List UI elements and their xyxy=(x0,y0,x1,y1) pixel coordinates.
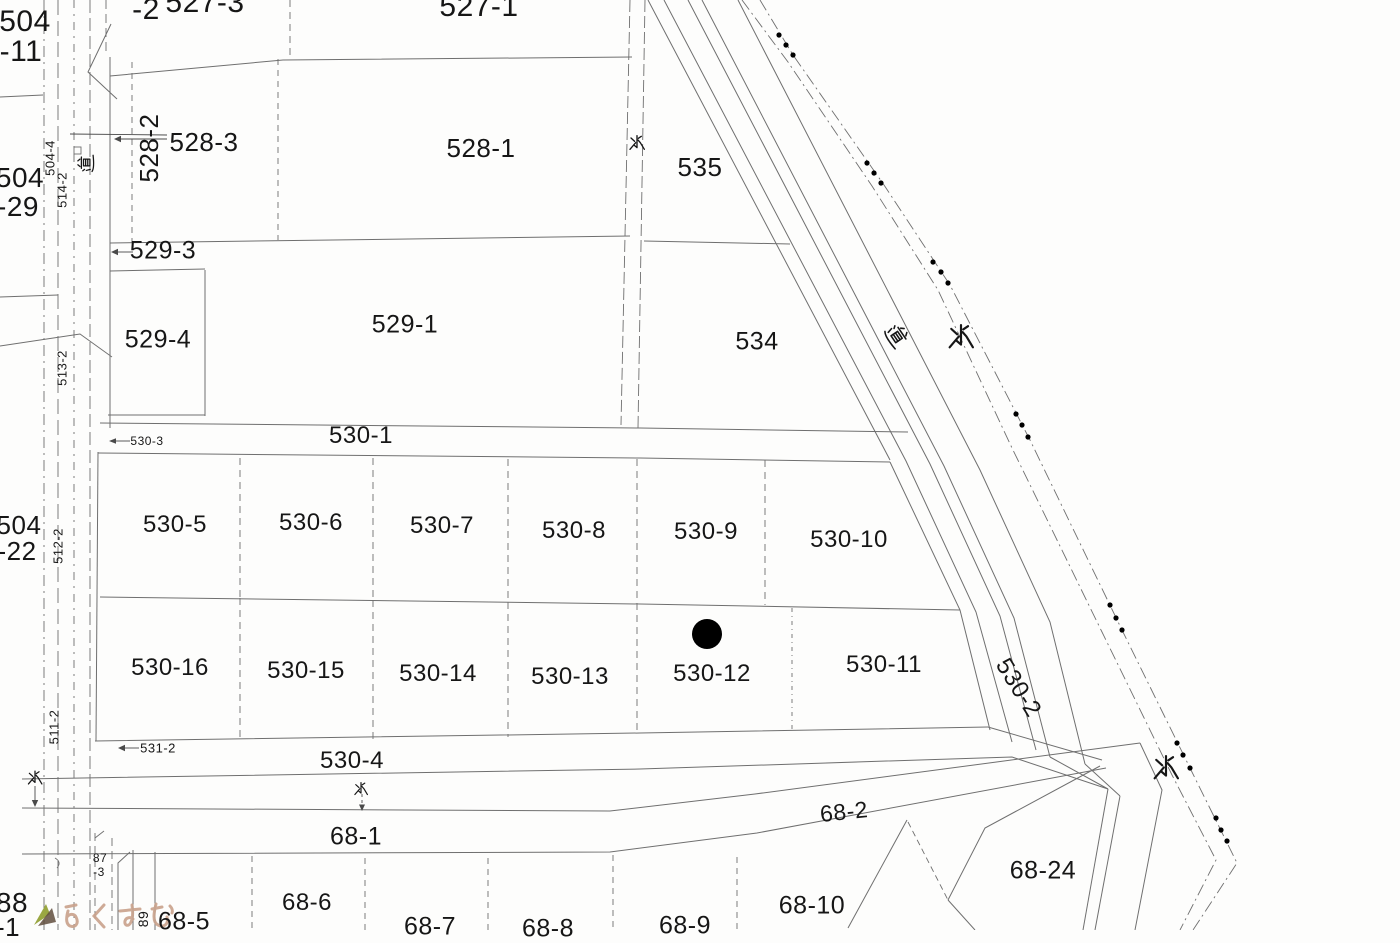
strip-530-1 xyxy=(98,423,908,462)
selected-parcel-marker xyxy=(692,619,722,649)
water-label xyxy=(1155,756,1178,778)
water-label xyxy=(28,771,41,784)
diagonal-road-band xyxy=(648,0,1237,930)
map-linework xyxy=(0,0,1400,930)
parcel-marker-dot xyxy=(692,619,722,649)
boundary-dot xyxy=(930,259,935,264)
water-channel-vertical xyxy=(621,0,790,428)
block-527-528 xyxy=(70,0,632,243)
road-label xyxy=(78,155,94,171)
boundary-dot xyxy=(1224,838,1229,843)
boundary-dot xyxy=(1119,627,1124,632)
road-label xyxy=(883,322,910,350)
boundary-dot xyxy=(945,280,950,285)
cadastral-map: 504-11-2527-3527-1504-29504-4514-2528-25… xyxy=(0,0,1400,930)
small-square-symbol xyxy=(74,147,81,154)
boundary-dot xyxy=(790,52,795,57)
block-529 xyxy=(108,249,205,416)
boundary-dot xyxy=(871,170,876,175)
boundary-dot xyxy=(1213,815,1218,820)
watermark-logo xyxy=(34,904,172,927)
cjk-labels xyxy=(28,136,1177,795)
boundary-point-dots xyxy=(776,32,1229,843)
boundary-dot xyxy=(1019,422,1024,427)
water-label xyxy=(950,325,973,347)
boundary-dot xyxy=(1180,752,1185,757)
boundary-dot xyxy=(864,160,869,165)
boundary-dot xyxy=(1218,827,1223,832)
boundary-dot xyxy=(1025,434,1030,439)
boundary-dot xyxy=(783,42,788,47)
boundary-dot xyxy=(878,180,883,185)
left-corridor xyxy=(0,0,117,930)
watermark-text xyxy=(66,904,172,927)
water-label xyxy=(355,783,368,795)
bottom-strips xyxy=(22,727,1140,854)
triangle-mark xyxy=(88,24,117,99)
boundary-dot xyxy=(1113,615,1118,620)
row-68 xyxy=(118,766,1100,930)
boundary-dot xyxy=(1013,411,1018,416)
boundary-dot xyxy=(1107,602,1112,607)
boundary-dot xyxy=(1187,765,1192,770)
boundary-dot xyxy=(1174,740,1179,745)
road-junction xyxy=(1050,743,1162,930)
boundary-dot xyxy=(938,269,943,274)
boundary-dot xyxy=(776,32,781,37)
rows-530 xyxy=(95,458,990,741)
